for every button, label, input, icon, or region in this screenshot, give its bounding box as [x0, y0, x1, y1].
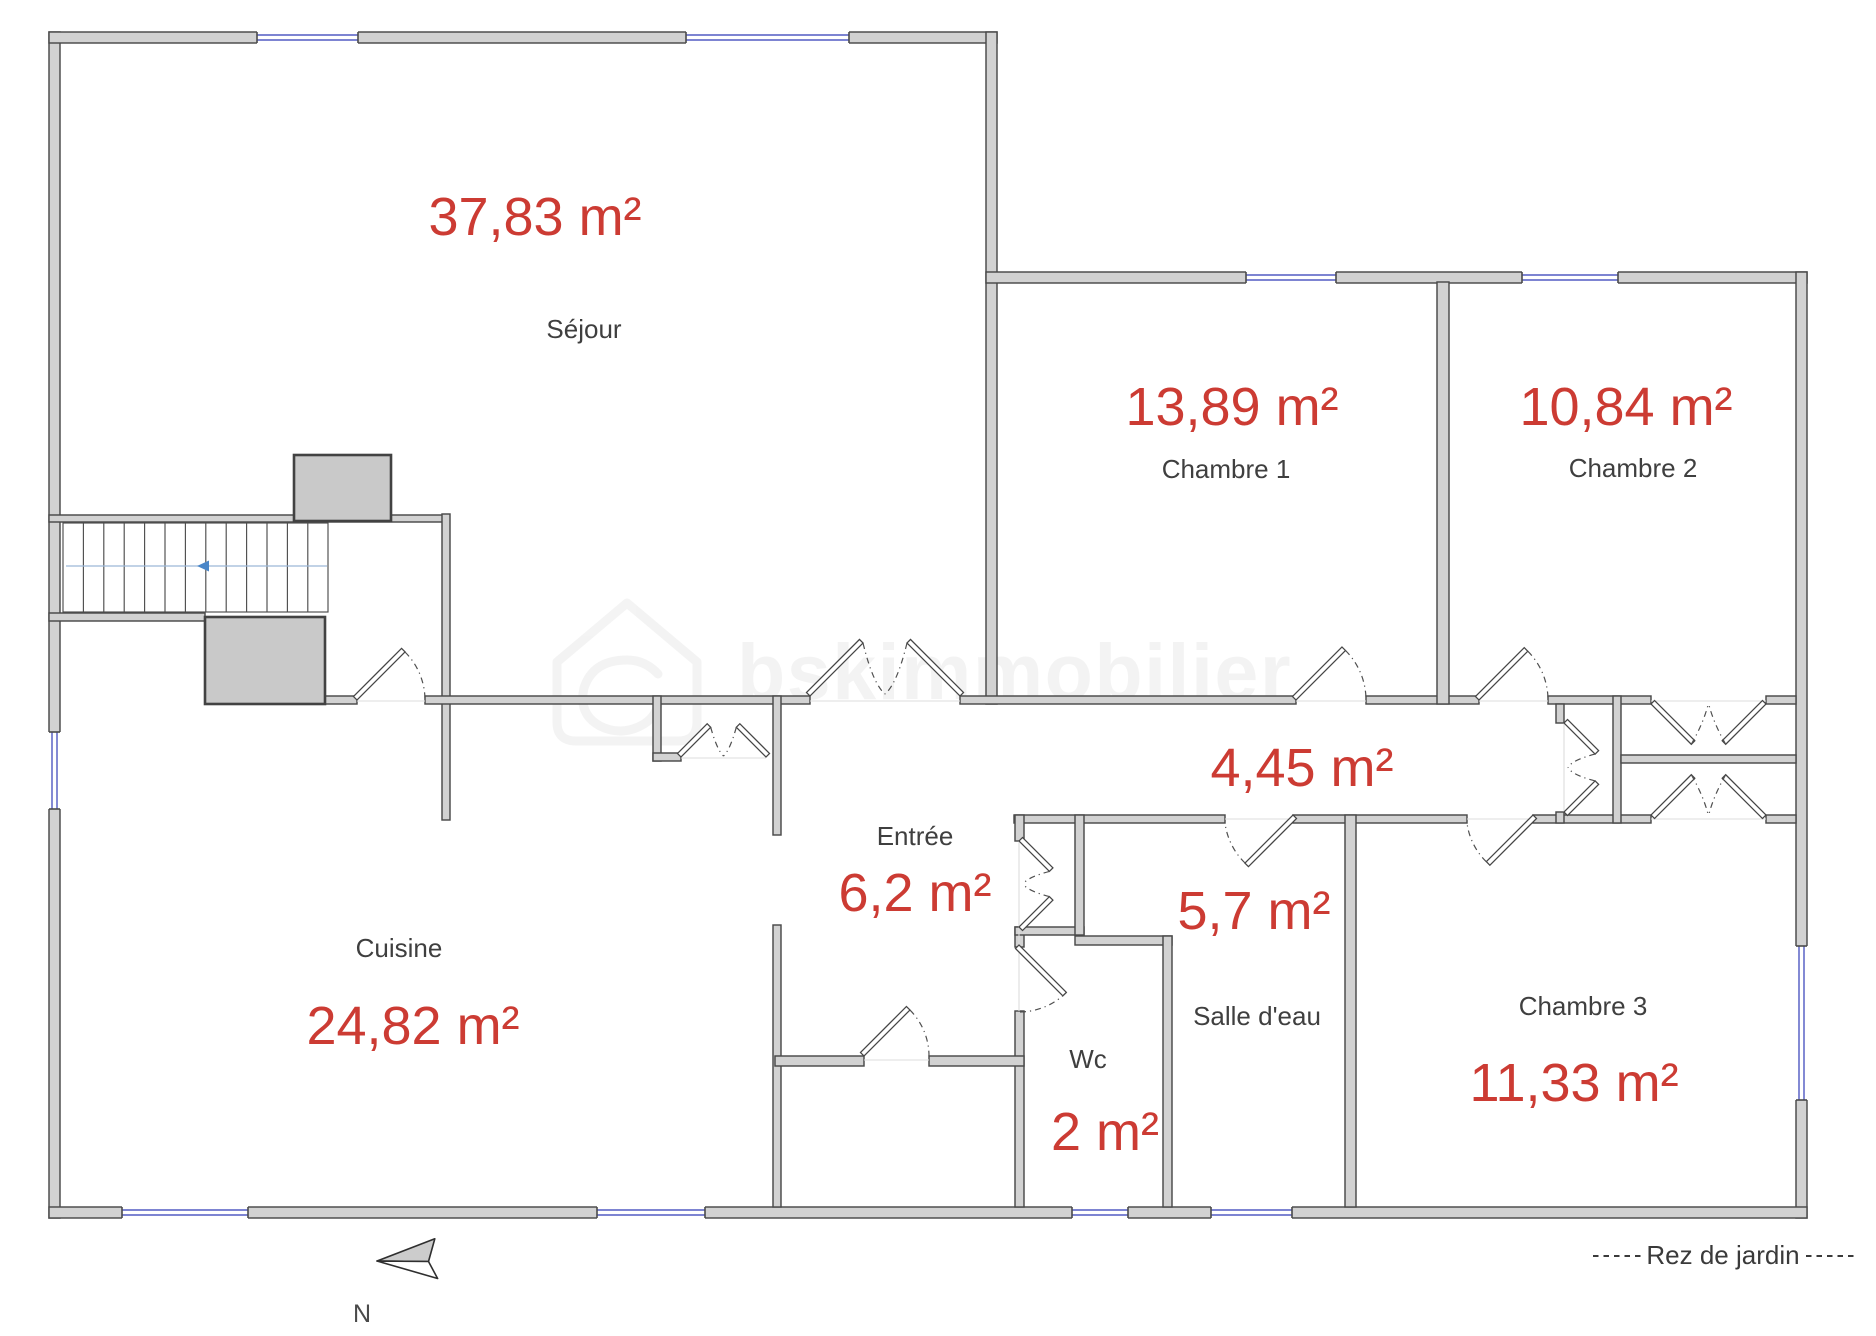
- svg-text:Wc: Wc: [1069, 1044, 1107, 1074]
- svg-text:13,89 m²: 13,89 m²: [1125, 377, 1338, 437]
- svg-text:37,83 m²: 37,83 m²: [428, 187, 641, 247]
- svg-text:Chambre 1: Chambre 1: [1162, 454, 1291, 484]
- svg-text:Rez de jardin: Rez de jardin: [1646, 1240, 1799, 1270]
- svg-text:Entrée: Entrée: [877, 821, 954, 851]
- svg-text:11,33 m²: 11,33 m²: [1469, 1053, 1678, 1113]
- svg-text:Chambre 2: Chambre 2: [1569, 453, 1698, 483]
- svg-text:2 m²: 2 m²: [1051, 1102, 1159, 1162]
- svg-text:Salle d'eau: Salle d'eau: [1193, 1001, 1321, 1031]
- svg-text:5,7 m²: 5,7 m²: [1177, 881, 1330, 941]
- svg-text:10,84 m²: 10,84 m²: [1519, 377, 1732, 437]
- svg-text:N: N: [353, 1300, 371, 1328]
- svg-text:Chambre 3: Chambre 3: [1519, 991, 1648, 1021]
- svg-text:24,82 m²: 24,82 m²: [306, 996, 519, 1056]
- svg-text:Cuisine: Cuisine: [356, 933, 443, 963]
- svg-text:Séjour: Séjour: [546, 314, 621, 344]
- svg-text:6,2 m²: 6,2 m²: [838, 863, 991, 923]
- svg-text:4,45 m²: 4,45 m²: [1210, 738, 1393, 798]
